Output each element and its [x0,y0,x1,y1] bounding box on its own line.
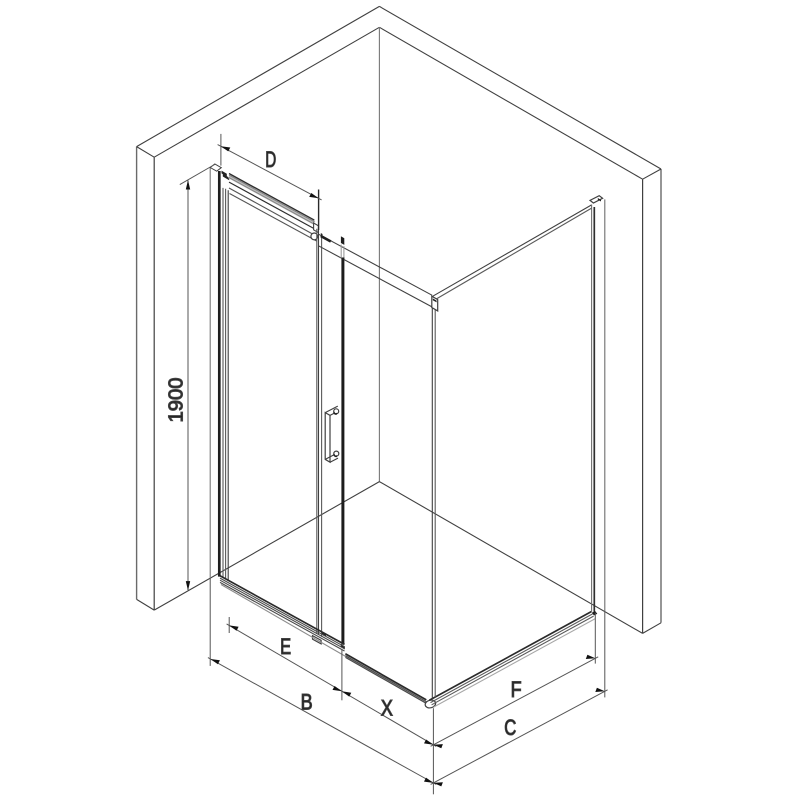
svg-text:B: B [301,689,313,714]
svg-text:F: F [511,677,522,702]
svg-text:X: X [381,696,393,721]
svg-text:E: E [280,634,291,659]
svg-text:D: D [265,147,276,172]
svg-text:1900: 1900 [166,378,188,423]
svg-text:C: C [504,715,516,740]
